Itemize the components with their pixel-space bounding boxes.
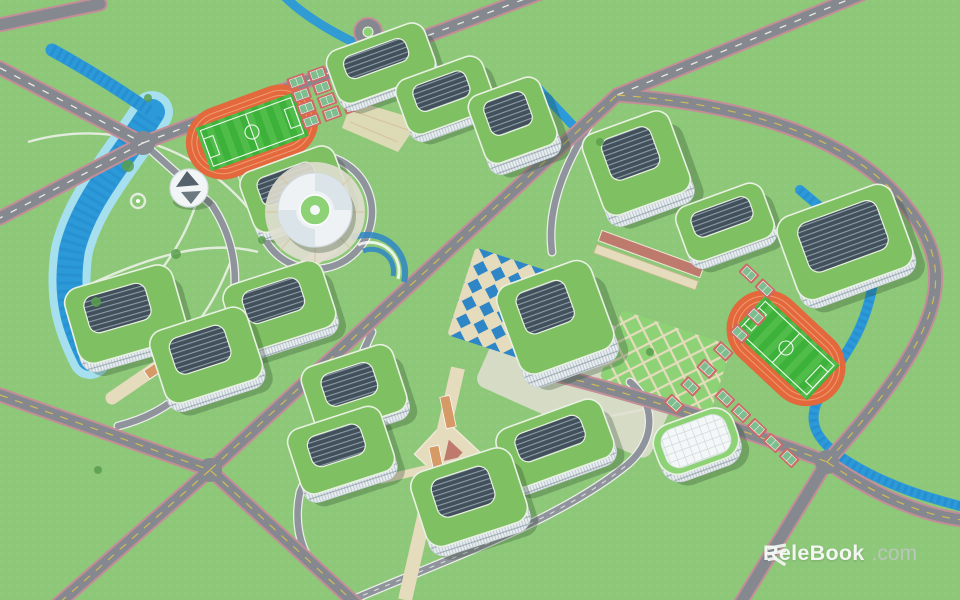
watermark-tld: .com [872, 542, 918, 566]
watermark: ReleBook.com [763, 541, 917, 566]
library-building [265, 162, 365, 262]
campus-aerial-render: ReleBook.com [0, 0, 960, 600]
scene-canvas [0, 0, 960, 600]
relebook-logo-icon [763, 541, 790, 568]
